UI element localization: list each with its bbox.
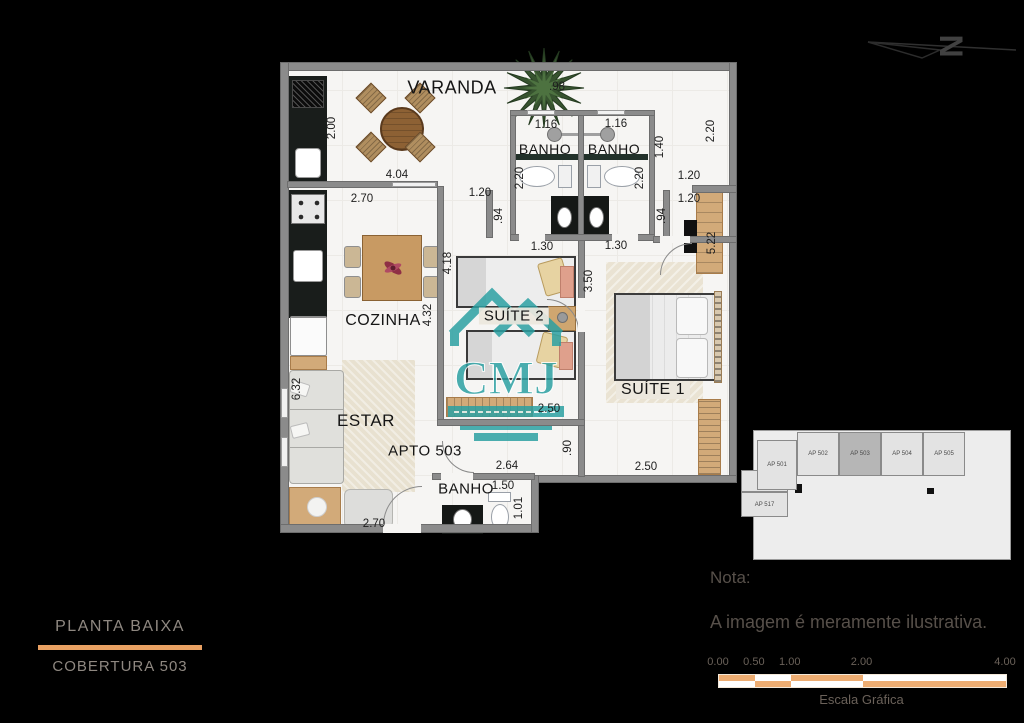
varanda-sink [295, 148, 321, 178]
toilet-tank [587, 165, 601, 188]
dimension-label: .94 [493, 208, 505, 224]
note-block: Nota: A imagem é meramente ilustrativa. [710, 568, 987, 633]
vanity-sink [557, 207, 572, 228]
room-label: BANHO [519, 141, 571, 157]
dimension-label: .94 [656, 208, 668, 224]
bed-pillow [676, 297, 708, 335]
room-label: VARANDA [407, 78, 496, 99]
dimension-label: 5.22 [706, 232, 718, 254]
wall [692, 185, 737, 193]
scale-caption: Escala Gráfica [718, 692, 1005, 707]
dimension-label: 1.16 [605, 118, 627, 130]
window-marker [597, 110, 625, 115]
scale-tick: 0.50 [743, 656, 764, 668]
scale-tick: 4.00 [994, 656, 1015, 668]
note-body: A imagem é meramente ilustrativa. [710, 612, 987, 633]
north-arrow-icon: N [850, 12, 1020, 72]
dimension-label: 1.30 [531, 241, 553, 253]
room-label: ESTAR [337, 411, 395, 431]
sheet-subtitle: COBERTURA 503 [0, 658, 240, 675]
sheet-title: PLANTA BAIXA [0, 618, 240, 636]
keyplan-unit-ap-501: AP 501 [757, 440, 797, 490]
cooktop [291, 194, 325, 224]
dimension-label: 3.50 [583, 270, 595, 292]
dimension-label: 2.00 [326, 117, 338, 139]
kitchen-cabinet [290, 356, 327, 370]
window-marker [527, 110, 555, 115]
dimension-label: 1.16 [535, 119, 557, 131]
keyplan-door [927, 488, 934, 494]
dining-chair [344, 246, 361, 268]
wall [578, 110, 584, 240]
keyplan-unit-ap-502: AP 502 [797, 432, 839, 476]
cmj-watermark-text: CMJ [454, 352, 558, 405]
titleblock: PLANTA BAIXA COBERTURA 503 [0, 618, 240, 675]
keyplan-unit-ap-503: AP 503 [839, 432, 881, 476]
dimension-label: 2.20 [705, 120, 717, 142]
door-opening [578, 298, 585, 332]
dimension-label: 1.20 [678, 170, 700, 182]
keyplan-unit-ap-505: AP 505 [923, 432, 965, 476]
scale-bar [718, 674, 1007, 688]
dimension-label: 6.32 [291, 378, 303, 400]
table-flowers [380, 255, 406, 281]
dimension-label: 2.20 [634, 167, 646, 189]
keyplan-unit-ap-517: AP 517 [741, 492, 788, 517]
dimension-label: 2.70 [363, 518, 385, 530]
window-marker [281, 388, 288, 418]
room-label: BANHO [438, 481, 494, 498]
kitchen-sink [293, 250, 323, 282]
room-label: BANHO [588, 141, 640, 157]
dimension-label: .98 [549, 81, 565, 93]
dimension-label: 4.32 [422, 304, 434, 326]
dimension-label: 1.20 [469, 187, 491, 199]
wall [729, 62, 737, 483]
dimension-label: 1.20 [678, 193, 700, 205]
dimension-label: 2.64 [496, 460, 518, 472]
dimension-label: .90 [562, 440, 574, 456]
wall [437, 186, 444, 426]
refrigerator [290, 316, 327, 356]
scale-tick: 1.00 [779, 656, 800, 668]
closet-shelf [698, 399, 721, 475]
north-letter: N [933, 34, 969, 57]
barbecue-grill [292, 80, 324, 108]
dimension-label: 1.30 [605, 240, 627, 252]
dimension-label: 4.18 [442, 252, 454, 274]
scale-segment [863, 681, 1007, 687]
floor-plan-sheet: N [0, 0, 1024, 723]
titleblock-divider [38, 645, 202, 650]
window-marker [392, 182, 436, 187]
dining-chair [344, 276, 361, 298]
headboard [714, 291, 722, 383]
wall [531, 475, 539, 533]
dimension-label: 1.01 [513, 497, 525, 519]
room-label: SUÍTE 1 [616, 381, 690, 399]
door-opening [441, 473, 473, 480]
dimension-label: 4.04 [386, 169, 408, 181]
door-opening [660, 236, 690, 243]
wall [280, 62, 737, 71]
room-label: COZINHA [345, 312, 421, 330]
wall [532, 475, 737, 483]
vanity-sink [589, 207, 604, 228]
wall [437, 419, 585, 426]
dimension-label: 1.50 [492, 480, 514, 492]
dimension-label: 2.70 [351, 193, 373, 205]
room-label: SUÍTE 2 [479, 308, 549, 325]
bed-pillow [676, 338, 708, 378]
dimension-label: 2.20 [514, 167, 526, 189]
scale-segment [755, 681, 791, 687]
wall [649, 110, 655, 240]
scale-tick: 0.00 [707, 656, 728, 668]
scale-segment [719, 681, 755, 687]
door-opening [383, 524, 421, 533]
dimension-label: 2.50 [538, 403, 560, 415]
scale-tick: 2.00 [851, 656, 872, 668]
keyplan-unit-ap-504: AP 504 [881, 432, 923, 476]
note-heading: Nota: [710, 568, 987, 588]
window-marker [281, 437, 288, 467]
room-label: APTO 503 [388, 443, 462, 460]
dimension-label: 1.40 [654, 136, 666, 158]
side-table-top [307, 497, 327, 517]
keyplan: AP 501AP 502AP 503AP 504AP 505AP 517 [741, 428, 1012, 560]
toilet-tank [558, 165, 572, 188]
door-opening [519, 234, 545, 241]
scale-segment [791, 681, 863, 687]
dimension-label: 2.50 [635, 461, 657, 473]
